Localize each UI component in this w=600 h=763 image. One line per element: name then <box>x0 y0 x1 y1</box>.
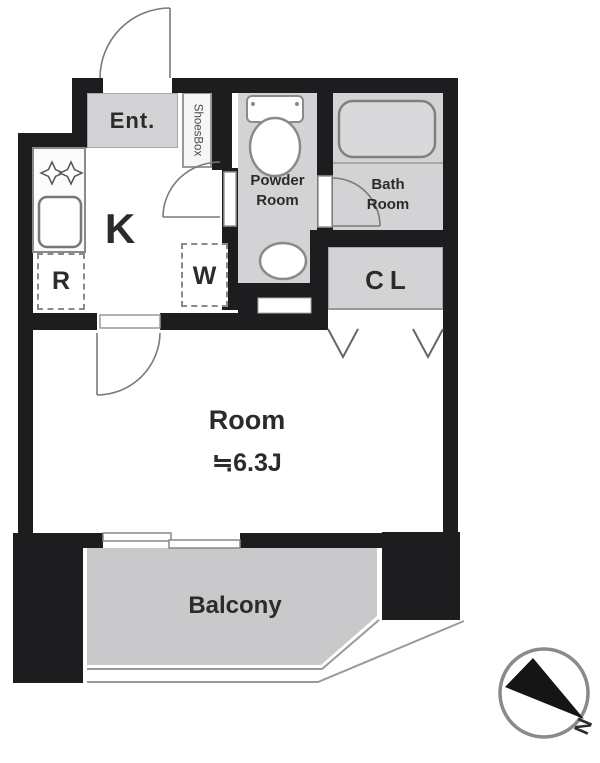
powder-sink-icon <box>260 243 306 279</box>
powder-room-lower-opening <box>258 298 311 313</box>
refrigerator-label: R <box>37 265 85 298</box>
closet-door-chevron <box>328 329 358 357</box>
bath-room-door <box>318 176 332 227</box>
room-door-arc <box>97 333 160 395</box>
entrance-door-arc <box>100 8 170 78</box>
bath-room-label: Bath Room <box>333 175 443 215</box>
floor-plan: Ent. ShoesBox K R W Powder Room Bath Roo… <box>0 0 600 763</box>
room-size-label: ≒6.3J <box>147 447 347 480</box>
kitchen-label: K <box>85 201 155 256</box>
window-panel <box>103 533 171 541</box>
powder-room-door <box>224 172 236 226</box>
kitchen-sink-icon <box>39 197 81 247</box>
washer-label: W <box>181 260 228 293</box>
hall-door-arc <box>163 162 220 217</box>
room-door-panel <box>100 315 160 328</box>
shoes-box-label: ShoesBox <box>189 104 204 156</box>
powder-room-label: Powder Room <box>238 171 317 211</box>
closet-label: CL <box>328 263 443 297</box>
toilet-bowl-icon <box>250 118 300 176</box>
toilet-detail <box>251 102 255 106</box>
room-label: Room <box>147 403 347 439</box>
balcony-label: Balcony <box>135 590 335 622</box>
entrance-label: Ent. <box>87 106 178 135</box>
closet-door-chevron <box>413 329 443 357</box>
window-panel <box>169 540 240 548</box>
bathtub-icon <box>339 101 435 157</box>
toilet-detail <box>295 102 299 106</box>
